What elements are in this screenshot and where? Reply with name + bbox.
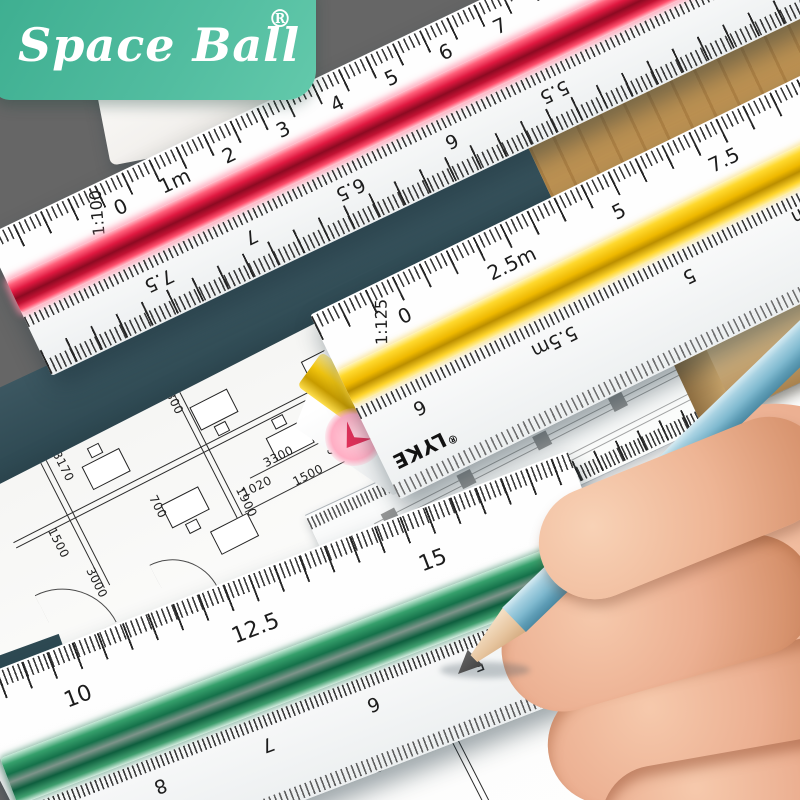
dimension-label: 1020 [239,473,274,500]
ruler-number: 7 [489,12,511,39]
ruler-number: 5 [380,64,402,91]
registered-trademark-icon: ® [268,4,292,33]
ruler-number: 8 [151,773,170,798]
ruler-number: 2 [218,142,240,169]
ruler-number: 0 [110,193,132,220]
ruler-number: 12.5 [228,608,283,649]
logo-banner: Space Ball ® [0,0,316,100]
brand-logo-text: Space Ball [18,18,300,72]
ruler-number: 3 [272,116,294,143]
ruler-number: 6 [435,38,457,65]
ruler-number: 6 [364,692,383,717]
product-photo-scale-rulers: 3170 300 700 1900 3300 1500 1020 840 300… [0,0,800,800]
ruler-number: 0 [394,302,416,329]
ruler-number: 4 [326,90,348,117]
dimension-label: 1500 [45,525,72,560]
scale-label: 1:125 [371,299,391,345]
ruler-number: 6 [409,395,430,420]
ruler-number: 5 [608,198,630,225]
ruler-number: 5 [679,263,700,288]
ruler-number: 7 [258,732,277,757]
desk-icon [161,486,210,528]
desk-icon [210,513,259,555]
ruler-number: 15 [415,544,450,577]
ruler-number: 10 [61,680,96,713]
